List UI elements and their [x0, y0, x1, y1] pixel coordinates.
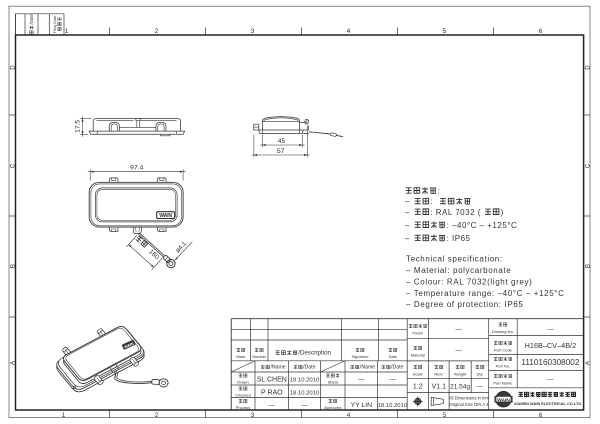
svg-text:4: 4 [347, 412, 351, 419]
svg-text:/Name: /Name [360, 365, 375, 371]
svg-text:6: 6 [539, 412, 543, 419]
svg-text:2: 2 [155, 412, 159, 419]
svg-text:: –40°C – +125°C: : –40°C – +125°C [447, 221, 518, 230]
svg-text:WAIN: WAIN [497, 397, 510, 403]
svg-text:57: 57 [277, 148, 285, 155]
svg-text:SL CHEN: SL CHEN [257, 376, 287, 383]
svg-text:Material: Material [411, 353, 425, 358]
svg-text:Stand: Stand [328, 379, 338, 384]
svg-text:/Name: /Name [270, 365, 285, 371]
svg-text:/Date: /Date [303, 365, 316, 371]
svg-text:17.5: 17.5 [75, 120, 82, 133]
svg-text:21.54g: 21.54g [450, 383, 470, 390]
svg-text:18.10.2010: 18.10.2010 [290, 377, 320, 383]
svg-text:Part Code: Part Code [494, 348, 513, 353]
svg-text:): ) [501, 208, 504, 217]
svg-text:4: 4 [347, 28, 351, 35]
svg-text:Part Name: Part Name [493, 381, 513, 386]
svg-text:45: 45 [278, 138, 286, 145]
svg-text:–: – [405, 234, 410, 243]
svg-text:C: C [584, 163, 591, 168]
svg-text:18.10.2010: 18.10.2010 [378, 403, 408, 409]
svg-text:XIAMEN WAIN ELECTRICAL CO.LTD: XIAMEN WAIN ELECTRICAL CO.LTD [514, 401, 581, 406]
svg-text:5: 5 [443, 412, 447, 419]
svg-text:Filing Code: Filing Code [53, 16, 57, 34]
svg-text:1: 1 [62, 412, 66, 419]
svg-text:Finish: Finish [412, 331, 423, 336]
svg-text:–: – [405, 197, 410, 206]
svg-text:3: 3 [251, 28, 255, 35]
svg-text:5: 5 [443, 28, 447, 35]
svg-text:D: D [9, 65, 16, 70]
svg-text:—: — [389, 376, 396, 383]
svg-text:YY LIN: YY LIN [351, 402, 373, 409]
svg-text:– Colour: RAL 7032(light g: – Colour: RAL 7032(light grey) [406, 277, 532, 286]
svg-text:Approved: Approved [324, 405, 341, 410]
svg-text:Drawn: Drawn [237, 379, 249, 384]
svg-text:—: — [269, 402, 276, 409]
svg-text:– Degree of protection: IP: – Degree of protection: IP65 [406, 300, 523, 309]
svg-text:D: D [584, 65, 591, 70]
svg-text:—: — [547, 326, 554, 333]
svg-text:B: B [10, 264, 17, 268]
svg-text:Original Size DIN A 4: Original Size DIN A 4 [449, 402, 489, 407]
svg-text:Drawing No.: Drawing No. [492, 329, 514, 334]
svg-text:Scale: Scale [413, 372, 424, 377]
svg-text:Mark: Mark [236, 354, 245, 359]
svg-text:H16B–CV–4B/2: H16B–CV–4B/2 [525, 341, 577, 350]
svg-text:Process: Process [236, 405, 250, 410]
svg-text:Qty.: Qty. [476, 372, 483, 377]
svg-text:3: 3 [251, 412, 255, 419]
svg-text:—: — [455, 348, 462, 355]
svg-text:—: — [547, 377, 554, 384]
svg-text:—: — [455, 326, 462, 333]
svg-text:P RAO: P RAO [261, 390, 283, 397]
svg-text:Date: Date [389, 354, 398, 359]
svg-text:WAIN: WAIN [159, 213, 172, 219]
svg-text:18.10.2010: 18.10.2010 [290, 391, 320, 397]
svg-text:1110160308002: 1110160308002 [521, 358, 579, 367]
svg-text:B: B [584, 264, 591, 268]
svg-text:: RAL 7032 (: : RAL 7032 ( [430, 208, 481, 217]
svg-text:Weight: Weight [454, 372, 467, 377]
svg-text:97.4: 97.4 [130, 165, 143, 172]
svg-text:REV.: REV. [434, 372, 443, 377]
svg-text:V1.1: V1.1 [432, 383, 447, 390]
svg-text:–: – [405, 208, 410, 217]
svg-text:Port No.: Port No. [496, 364, 511, 369]
svg-text:—: — [358, 376, 365, 383]
svg-text:1: 1 [65, 28, 69, 35]
svg-text:: IP65: : IP65 [447, 234, 471, 243]
svg-text:– Material: polycarbonate: – Material: polycarbonate [406, 266, 511, 275]
svg-text:Number: Number [252, 354, 267, 359]
svg-text::: : [438, 187, 441, 196]
svg-text:All Dimensions in mm: All Dimensions in mm [449, 396, 490, 401]
svg-text::: : [430, 197, 433, 206]
svg-text:Checked: Checked [235, 392, 251, 397]
svg-text:C: C [9, 163, 16, 168]
svg-text:–: – [405, 221, 410, 230]
svg-text:Technical specification:: Technical specification: [406, 255, 503, 264]
svg-text:/Description: /Description [298, 350, 331, 357]
svg-text:6: 6 [539, 28, 543, 35]
svg-text:Signature: Signature [351, 354, 369, 359]
svg-text:– Temperature range: –40°C: – Temperature range: –40°C – +125°C [406, 289, 564, 298]
svg-text:/Date: /Date [29, 13, 34, 24]
svg-text:—: — [301, 402, 308, 409]
svg-text:/Date: /Date [391, 365, 404, 371]
svg-text:2: 2 [155, 28, 159, 35]
svg-text:1:2: 1:2 [413, 383, 423, 390]
svg-text:—: — [477, 383, 484, 390]
